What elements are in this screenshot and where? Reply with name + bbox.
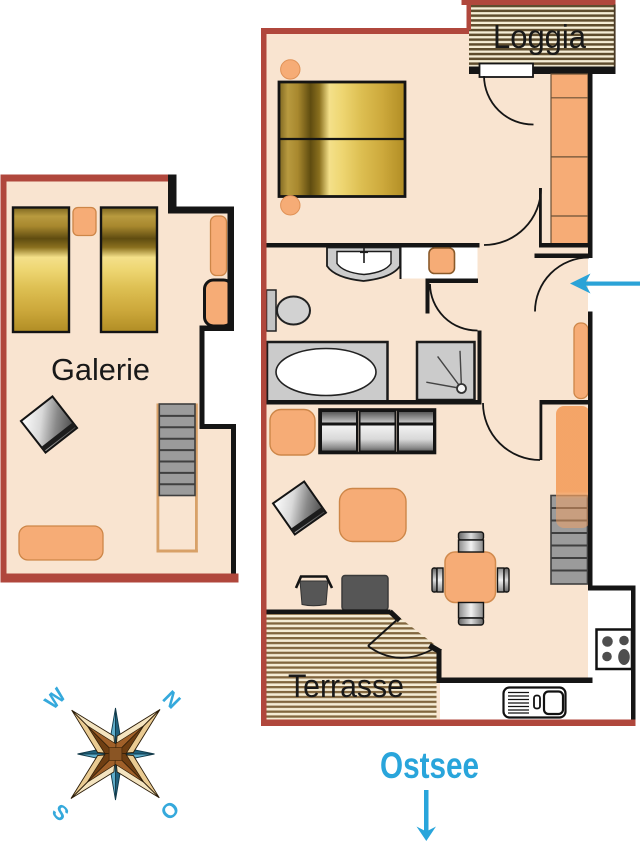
svg-text:Ostsee: Ostsee <box>380 745 479 786</box>
svg-text:Loggia: Loggia <box>493 18 587 55</box>
svg-text:Galerie: Galerie <box>51 352 150 387</box>
svg-text:Terrasse: Terrasse <box>288 668 404 704</box>
